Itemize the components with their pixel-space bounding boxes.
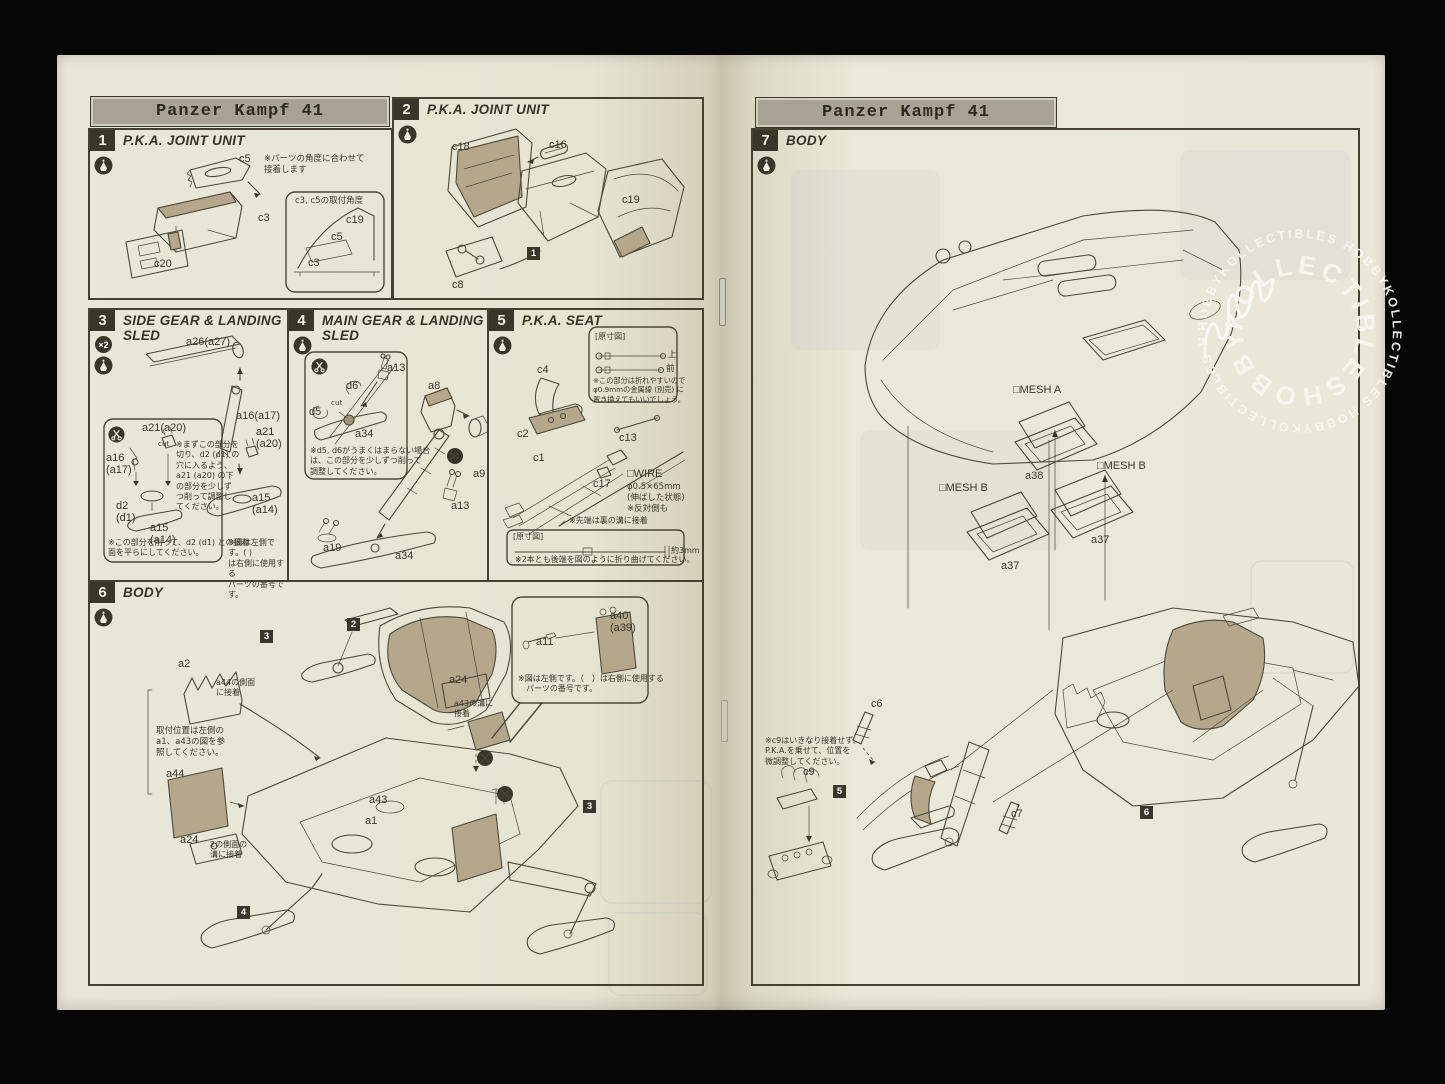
step-title: MAIN GEAR & LANDING SLED bbox=[322, 313, 487, 343]
part-label: c8 bbox=[452, 279, 464, 291]
part-label: d2 (d1) bbox=[116, 500, 136, 524]
inset-note: ※この部分は折れやすいので φ0.9mmの金属線 (別売) に 置き換えてもいい… bbox=[593, 376, 685, 404]
assembly-ref-badge: 1 bbox=[527, 247, 540, 260]
wire-label: □WIRE bbox=[627, 468, 662, 480]
part-label: c16 bbox=[549, 139, 567, 151]
direction-label: 上 bbox=[668, 350, 677, 361]
glue-icon bbox=[94, 608, 113, 627]
glue-icon bbox=[398, 125, 417, 144]
note: 2の側面の 溝に接着 bbox=[210, 840, 247, 861]
inset-note: ※図は左側です。（ ）は右側に使用する パーツの番号です。 bbox=[518, 674, 664, 695]
part-label: a19 bbox=[323, 542, 341, 554]
part-label: a16(a17) bbox=[236, 410, 280, 422]
inset-note: ※d5, d6がうまくはまらない場合 は、この部分を少しずつ削って 調整してくだ… bbox=[310, 446, 430, 477]
part-label: a21 (a20) bbox=[256, 426, 282, 450]
step-2-panel: 2 P.K.A. JOINT UNIT c18 c16 c19 c8 1 bbox=[392, 97, 704, 300]
part-label: c6 bbox=[871, 698, 883, 710]
part-label: a16 (a17) bbox=[106, 452, 132, 476]
part-label: c20 bbox=[154, 258, 172, 270]
part-label: c3 bbox=[308, 257, 320, 269]
glue-icon bbox=[293, 336, 312, 355]
part-label: c4 bbox=[537, 364, 549, 376]
note: 取付位置は左側の a1、a43の図を参 照してください。 bbox=[156, 726, 225, 759]
part-label: c18 bbox=[452, 141, 470, 153]
glue-icon bbox=[493, 336, 512, 355]
inset-title: c3, c5の取付角度 bbox=[295, 196, 363, 207]
step-number-badge: 7 bbox=[753, 130, 778, 151]
part-label: a2 bbox=[178, 658, 190, 670]
kit-title: Panzer Kampf 41 bbox=[822, 103, 990, 122]
wire-spec: φ0.5×65mm (伸ばした状態) ※反対側も bbox=[627, 482, 685, 515]
step-6-panel: 6 BODY 3 2 4 3 a2 a44の側面 に接着 取付位置は左側の a1… bbox=[88, 580, 704, 986]
cut-label: cut bbox=[331, 398, 342, 407]
part-label: a40 (a39) bbox=[610, 610, 636, 634]
part-label: a11 bbox=[536, 636, 554, 648]
note: ※パーツの角度に合わせて 接着します bbox=[264, 154, 364, 176]
scissors-icon bbox=[311, 358, 328, 375]
part-label: c17 bbox=[593, 478, 611, 490]
step-title: P.K.A. SEAT bbox=[522, 313, 602, 328]
part-label: a24 bbox=[449, 674, 467, 686]
step-title: P.K.A. JOINT UNIT bbox=[123, 133, 245, 148]
assembly-ref-badge: 3 bbox=[583, 800, 596, 813]
kit-title: Panzer Kampf 41 bbox=[156, 102, 324, 121]
part-label: a8 bbox=[428, 380, 440, 392]
step-number-badge: 4 bbox=[289, 310, 314, 331]
part-label: a13 bbox=[387, 362, 405, 374]
part-label: □MESH B bbox=[1097, 460, 1146, 472]
cut-label: cut bbox=[158, 439, 169, 448]
part-label: a1 bbox=[365, 815, 377, 827]
scan-background: Panzer Kampf 41 1 P.K.A. JOINT UNIT c5 ※… bbox=[0, 0, 1445, 1084]
step-title: P.K.A. JOINT UNIT bbox=[427, 102, 549, 117]
part-label: c3 bbox=[258, 212, 270, 224]
quantity-x2-icon: ×2 bbox=[95, 336, 112, 353]
step-title: BODY bbox=[123, 585, 163, 600]
step-3-panel: 3 SIDE GEAR & LANDING SLED ×2 a26(a27) a… bbox=[88, 308, 289, 582]
step-number-badge: 5 bbox=[489, 310, 514, 331]
glue-icon bbox=[94, 156, 113, 175]
note: a43の溝に 接着 bbox=[454, 699, 493, 720]
step-number-badge: 1 bbox=[90, 130, 115, 151]
part-label: c5 bbox=[239, 153, 251, 165]
step-5-panel: 5 P.K.A. SEAT [原寸図] 上 前 ※この部分は折れやすいので φ0… bbox=[487, 308, 704, 582]
step6-diagram bbox=[90, 582, 702, 984]
note: ※c9はいきなり接着せず、 P.K.A.を乗せて、位置を 微調整してください。 bbox=[765, 736, 861, 767]
part-label: d5 bbox=[309, 406, 321, 418]
tip-note: ※先端は裏の溝に接着 bbox=[569, 516, 648, 526]
part-label: a38 bbox=[1025, 470, 1043, 482]
direction-label: 前 bbox=[666, 364, 675, 375]
part-label: d6 bbox=[346, 380, 358, 392]
staple bbox=[721, 700, 728, 742]
part-label: c2 bbox=[517, 428, 529, 440]
part-label: a9 bbox=[473, 468, 485, 480]
step-4-panel: 4 MAIN GEAR & LANDING SLED d5 d6 cut a13… bbox=[287, 308, 489, 582]
inset-note: ※まずこの部分を 切り、d2 (d1) の 穴に入るよう、 a21 (a20) … bbox=[176, 440, 239, 513]
note: a44の側面 に接着 bbox=[216, 678, 255, 699]
assembly-ref-badge: 4 bbox=[237, 906, 250, 919]
part-label: a43 bbox=[369, 794, 387, 806]
part-label: a24 bbox=[180, 834, 198, 846]
scissors-icon bbox=[108, 426, 125, 443]
assembly-ref-badge: 3 bbox=[260, 630, 273, 643]
page-title-banner: Panzer Kampf 41 bbox=[755, 97, 1057, 128]
part-label: c13 bbox=[619, 432, 637, 444]
step-title: BODY bbox=[786, 133, 826, 148]
step-number-badge: 3 bbox=[90, 310, 115, 331]
part-label: a21(a20) bbox=[142, 422, 186, 434]
part-label: a44 bbox=[166, 768, 184, 780]
step-1-panel: 1 P.K.A. JOINT UNIT c5 ※パーツの角度に合わせて 接着しま… bbox=[88, 128, 393, 300]
page-title-banner: Panzer Kampf 41 bbox=[90, 96, 390, 127]
inset-note: ※2本とも後端を図のように折り曲げてください。 bbox=[515, 555, 695, 565]
part-label: □MESH A bbox=[1013, 384, 1061, 396]
part-label: c1 bbox=[533, 452, 545, 464]
part-label: c9 bbox=[803, 766, 815, 778]
part-label: c5 bbox=[331, 231, 343, 243]
assembly-ref-badge: 5 bbox=[833, 785, 846, 798]
step4-diagram bbox=[289, 310, 487, 580]
step-7-panel: 7 BODY □MESH A a38 □MESH B a37 □MESH B a… bbox=[751, 128, 1360, 986]
part-label: a13 bbox=[451, 500, 469, 512]
part-label: a34 bbox=[395, 550, 413, 562]
part-label: a26(a27) bbox=[186, 336, 230, 348]
inset-title: [原寸図] bbox=[595, 332, 625, 342]
step7-diagram bbox=[753, 130, 1358, 984]
part-label: a37 bbox=[1091, 534, 1109, 546]
glue-icon bbox=[94, 356, 113, 375]
inset-title: [原寸図] bbox=[513, 532, 543, 542]
part-label: c19 bbox=[622, 194, 640, 206]
part-label: □MESH B bbox=[939, 482, 988, 494]
part-label: a37 bbox=[1001, 560, 1019, 572]
step-number-badge: 2 bbox=[394, 99, 419, 120]
glue-icon bbox=[757, 156, 776, 175]
staple bbox=[719, 278, 726, 326]
part-label: c7 bbox=[1011, 808, 1023, 820]
part-label: a34 bbox=[355, 428, 373, 440]
step2-diagram bbox=[394, 99, 702, 298]
assembly-ref-badge: 6 bbox=[1140, 806, 1153, 819]
part-label: a15 (a14) bbox=[252, 492, 278, 516]
assembly-ref-badge: 2 bbox=[347, 618, 360, 631]
part-label: c19 bbox=[346, 214, 364, 226]
step-number-badge: 6 bbox=[90, 582, 115, 603]
